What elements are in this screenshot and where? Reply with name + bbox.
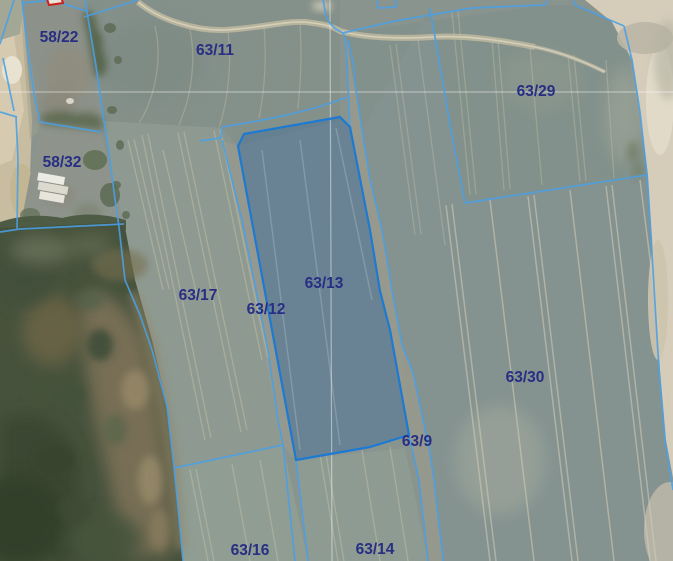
svg-text:63/12: 63/12 <box>247 301 286 318</box>
svg-text:63/30: 63/30 <box>506 369 545 386</box>
svg-text:63/29: 63/29 <box>517 83 556 100</box>
svg-text:58/22: 58/22 <box>40 29 79 46</box>
svg-text:63/16: 63/16 <box>231 542 270 559</box>
svg-text:58/32: 58/32 <box>43 154 82 171</box>
svg-text:63/13: 63/13 <box>305 275 344 292</box>
svg-text:63/9: 63/9 <box>402 433 433 450</box>
svg-text:63/11: 63/11 <box>196 42 234 59</box>
svg-text:63/14: 63/14 <box>356 541 395 558</box>
svg-text:63/17: 63/17 <box>179 287 218 304</box>
